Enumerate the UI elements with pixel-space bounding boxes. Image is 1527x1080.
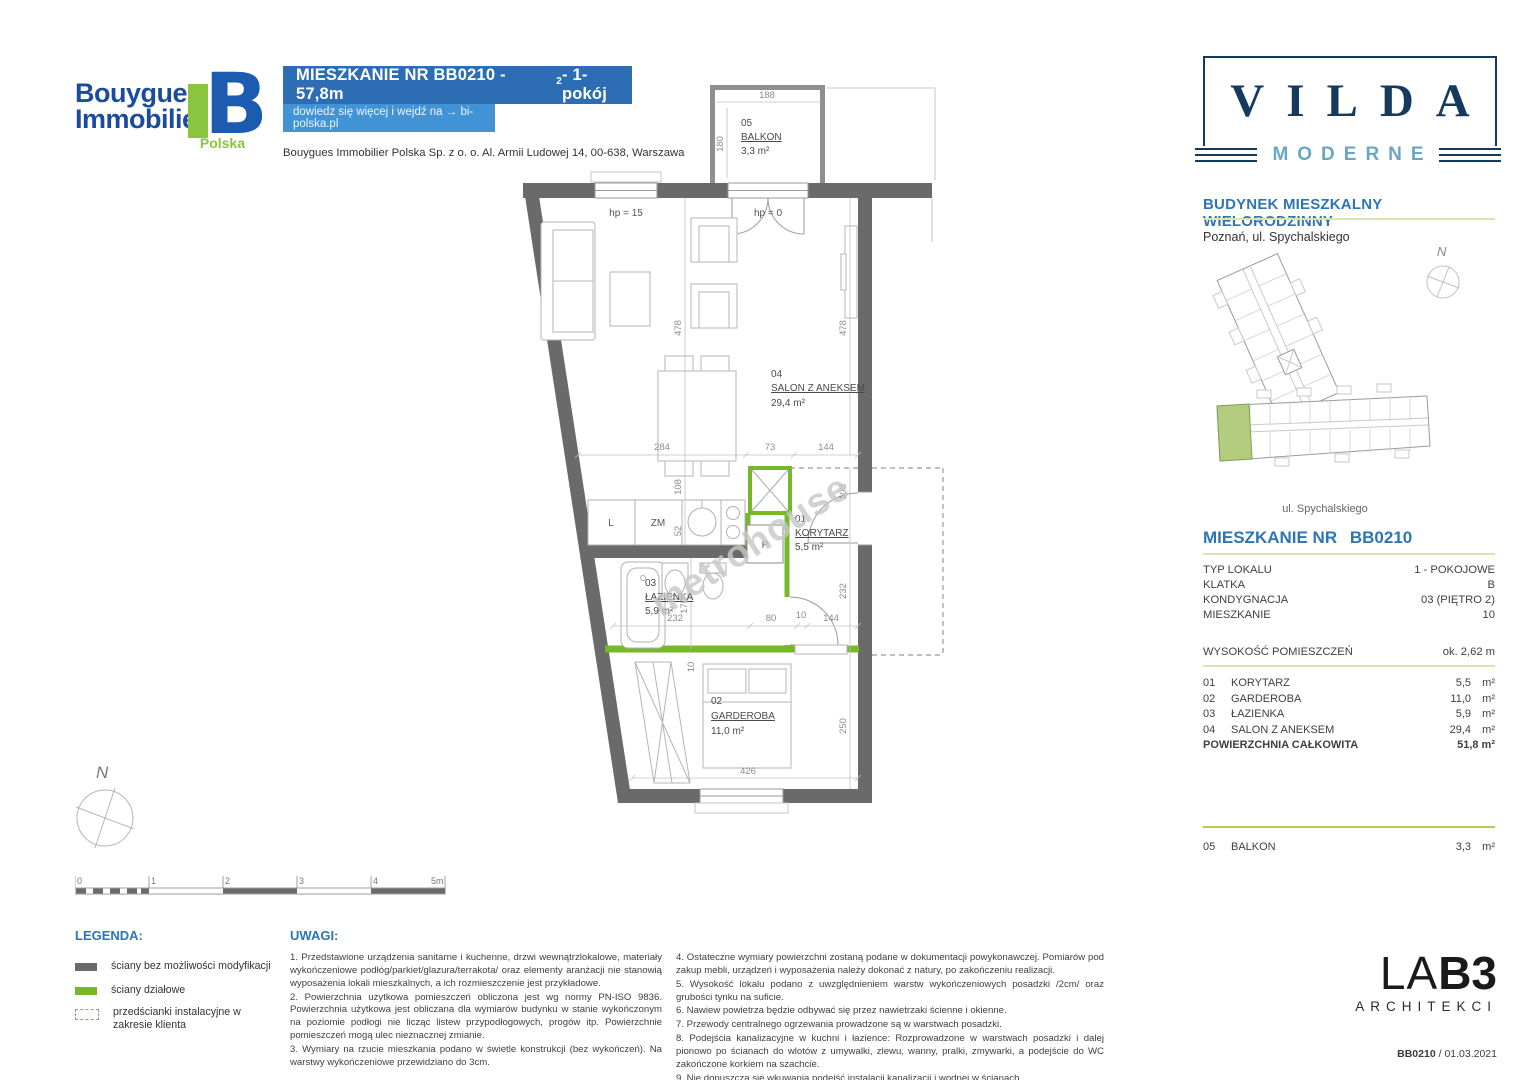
room-area-row: 02GARDEROBA11,0m² [1203,692,1495,708]
legend-item: ściany bez możliwości modyfikacji [75,960,271,973]
legend-swatch-partition-icon [75,987,97,995]
note: 4. Ostateczne wymiary powierzchni zostan… [676,952,1104,978]
svg-text:29,4 m²: 29,4 m² [771,398,806,409]
svg-text:426: 426 [740,766,756,777]
svg-text:BALKON: BALKON [741,132,782,143]
room-area-row: 01KORYTARZ5,5m² [1203,676,1495,692]
svg-text:232: 232 [838,583,849,599]
coffee-table-icon [610,272,650,326]
building-heading-rule [1203,218,1495,220]
apartment-heading-label: MIESZKANIE NR [1203,528,1337,547]
architect-logo-b3: B3 [1438,947,1497,999]
site-plan: N [1205,240,1495,502]
apartment-info-table: TYP LOKALU1 - POKOJOWE KLATKAB KONDYGNAC… [1203,563,1495,623]
balcony-rule [1203,826,1495,828]
architect-logo-subtitle: ARCHITEKCI [1340,1000,1497,1014]
svg-text:02: 02 [711,696,723,707]
svg-text:2: 2 [225,876,230,886]
balcony-area-row: 05BALKON3,3m² [1203,840,1495,856]
note: 9. Nie dopuszcza się wkuwania podejść in… [676,1073,1104,1080]
svg-text:180: 180 [715,136,726,152]
svg-text:SALON Z ANEKSEM: SALON Z ANEKSEM [771,383,865,394]
height-row: WYSOKOŚĆ POMIESZCZEŃok. 2,62 m [1203,645,1495,660]
room-areas-table: 01KORYTARZ5,5m² 02GARDEROBA11,0m² 03ŁAZI… [1203,676,1495,754]
chair-icon [701,461,729,476]
kitchen-sink-icon [688,508,716,536]
svg-text:11,0 m²: 11,0 m² [711,726,745,737]
garderoba-furniture [635,662,791,783]
floor-plan: L ZM P [495,70,945,820]
brand-logo-b-icon: B [204,62,268,146]
apartment-heading-number: BB0210 [1350,528,1412,547]
document-reference: BB0210 / 01.03.2021 [1340,1048,1497,1060]
logo-rule-left [1195,148,1257,162]
notes-column-right: 4. Ostateczne wymiary powierzchni zostan… [676,952,1104,1080]
info-row: MIESZKANIE10 [1203,608,1495,623]
svg-text:3: 3 [299,876,304,886]
svg-text:478: 478 [838,320,849,336]
neighbour-outline [827,88,935,242]
vilda-logo-subtitle-row: MODERNE [1195,144,1501,166]
vilda-logo-box: VILDA [1203,56,1497,146]
scale-bar: 0 1 2 3 4 5m [75,876,447,898]
legend-swatch-installation-icon [75,1009,99,1020]
svg-text:250: 250 [838,718,849,734]
notes-column-left: 1. Przedstawione urządzenia sanitarne i … [290,952,662,1071]
svg-text:80: 80 [766,613,777,624]
legend-title: LEGENDA: [75,928,143,943]
garderoba-passage [795,645,847,654]
hp-label-balcony-door: hp = 0 [754,208,783,219]
note: 5. Wysokość lokalu podano z uwzględnieni… [676,979,1104,1005]
site-compass-n-label: N [1437,244,1447,259]
legend-item: ściany działowe [75,984,185,997]
height-row-rule [1203,665,1495,667]
note: 3. Wymiary na rzucie mieszkania podano w… [290,1044,662,1070]
svg-text:284: 284 [654,442,670,453]
room-area-row: 04SALON Z ANEKSEM29,4m² [1203,723,1495,739]
chair-icon [665,461,693,476]
svg-text:5,5 m²: 5,5 m² [795,542,824,553]
building-heading: BUDYNEK MIESZKALNY WIELORODZINNY [1203,196,1495,230]
svg-text:188: 188 [759,90,775,101]
room-area-row: 03ŁAZIENKA5,9m² [1203,707,1495,723]
note: 6. Nawiew powietrza będzie odbywać się p… [676,1005,1104,1018]
svg-text:1: 1 [151,876,156,886]
svg-text:0: 0 [77,876,82,886]
vilda-logo-title: VILDA [1205,74,1495,128]
svg-text:144: 144 [823,613,839,624]
note: 7. Przewody centralnego ogrzewania prowa… [676,1019,1104,1032]
vilda-logo-subtitle: MODERNE [1257,144,1438,166]
svg-text:05: 05 [741,118,753,129]
svg-text:5m: 5m [431,876,444,886]
svg-text:4: 4 [373,876,378,886]
architect-logo: LAB3 ARCHITEKCI [1340,950,1497,1014]
note: 1. Przedstawione urządzenia sanitarne i … [290,952,662,991]
tv-cabinet-icon [845,226,857,318]
website-link[interactable]: dowiedz się więcej i wejdź na → bi-polsk… [283,104,495,132]
svg-text:144: 144 [818,442,834,453]
svg-text:10: 10 [686,662,697,673]
compass-n-label: N [96,763,109,782]
svg-text:3,3 m²: 3,3 m² [741,146,770,157]
interior-doors [790,597,847,654]
svg-text:GARDEROBA: GARDEROBA [711,711,775,722]
note: 8. Podejścia kanalizacyjne w kuchni i ła… [676,1033,1104,1072]
legend-swatch-structural-icon [75,963,97,971]
flat-card-document: Bouygues Immobilier Polska B MIESZKANIE … [0,0,1527,1080]
svg-text:108: 108 [673,479,684,495]
total-area-row: POWIERZCHNIA CAŁKOWITA51,8 m² [1203,738,1495,754]
compass: N [68,760,148,860]
info-row: TYP LOKALU1 - POKOJOWE [1203,563,1495,578]
svg-text:04: 04 [771,369,783,380]
legend-item: przedścianki instalacyjne w zakresie kli… [75,1006,283,1032]
hp-label-window: hp = 15 [609,208,643,219]
site-upper-wing [1208,250,1348,424]
svg-text:73: 73 [765,442,776,453]
svg-text:478: 478 [673,320,684,336]
chair-icon [701,356,729,371]
info-row: KLATKAB [1203,578,1495,593]
info-row: KONDYGNACJA03 (PIĘTRO 2) [1203,593,1495,608]
apartment-heading-rule [1203,553,1495,555]
apartment-heading: MIESZKANIE NR BB0210 [1203,528,1412,548]
fridge-label: L [608,518,614,529]
notes-title: UWAGI: [290,928,338,943]
scale-labels: 0 1 2 3 4 5m [77,876,444,886]
architect-logo-la: LA [1380,947,1438,999]
dishwasher-label: ZM [651,518,665,529]
logo-rule-right [1439,148,1501,162]
svg-text:52: 52 [673,526,684,537]
chair-icon [665,356,693,371]
salon-furniture [541,218,857,476]
street-label: ul. Spychalskiego [1205,503,1445,515]
note: 2. Powierzchnia użytkowa pomieszczeń obl… [290,992,662,1043]
website-link-text: dowiedz się więcej i wejdź na → bi-polsk… [293,106,495,130]
site-highlighted-unit [1217,404,1252,461]
svg-text:10: 10 [796,610,807,621]
